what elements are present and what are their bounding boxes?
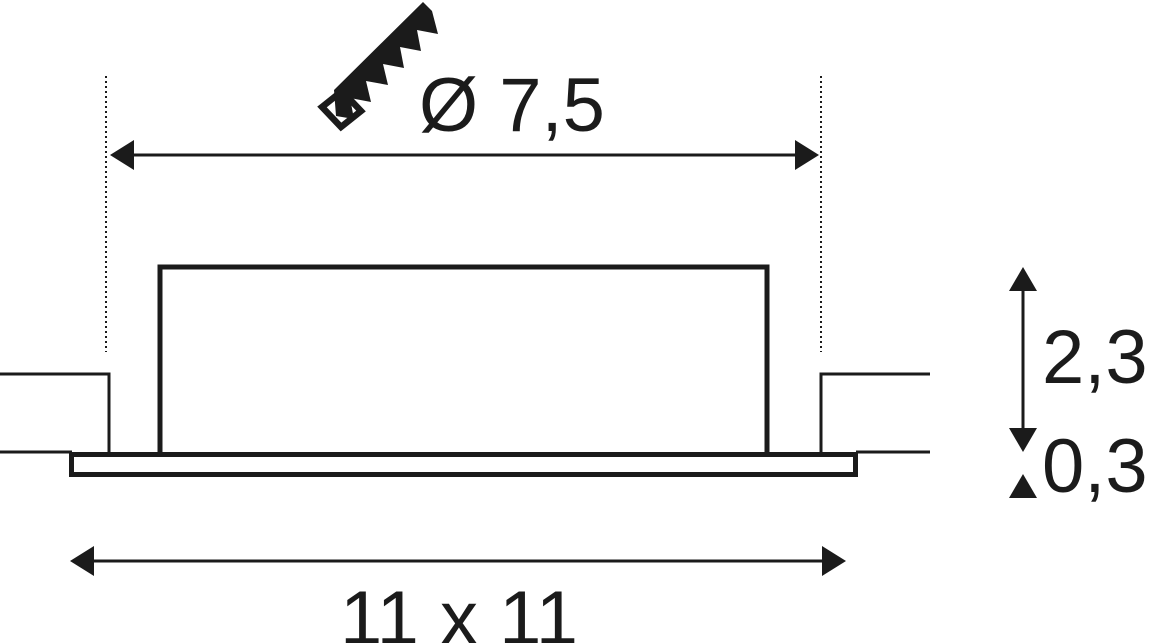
diameter-label: Ø 7,5 [419, 63, 605, 148]
thickness-label: 0,3 [1042, 424, 1148, 509]
dimension-drawing: Ø 7,5 2,3 0,3 [0, 0, 1150, 643]
ceiling-right-section [821, 374, 930, 453]
height-arrowhead-top-icon [1009, 267, 1037, 291]
fixture-cross-section [72, 267, 856, 475]
height-arrowhead-bottom-icon [1009, 428, 1037, 452]
diameter-dimension: Ø 7,5 [110, 63, 819, 170]
trim-plate [72, 455, 856, 475]
ceiling-left-section [0, 374, 109, 453]
height-label: 2,3 [1042, 315, 1148, 400]
footprint-arrowhead-right-icon [822, 546, 846, 576]
diameter-arrowhead-right-icon [795, 140, 819, 170]
thickness-arrowhead-icon [1009, 474, 1037, 498]
housing-outline [160, 267, 767, 453]
ceiling-cross-section [0, 374, 930, 453]
diameter-arrowhead-left-icon [110, 140, 134, 170]
footprint-label: 11 x 11 [340, 576, 578, 643]
technical-drawing-canvas: Ø 7,5 2,3 0,3 [0, 0, 1150, 643]
footprint-dimension: 11 x 11 [70, 546, 846, 643]
footprint-arrowhead-left-icon [70, 546, 94, 576]
